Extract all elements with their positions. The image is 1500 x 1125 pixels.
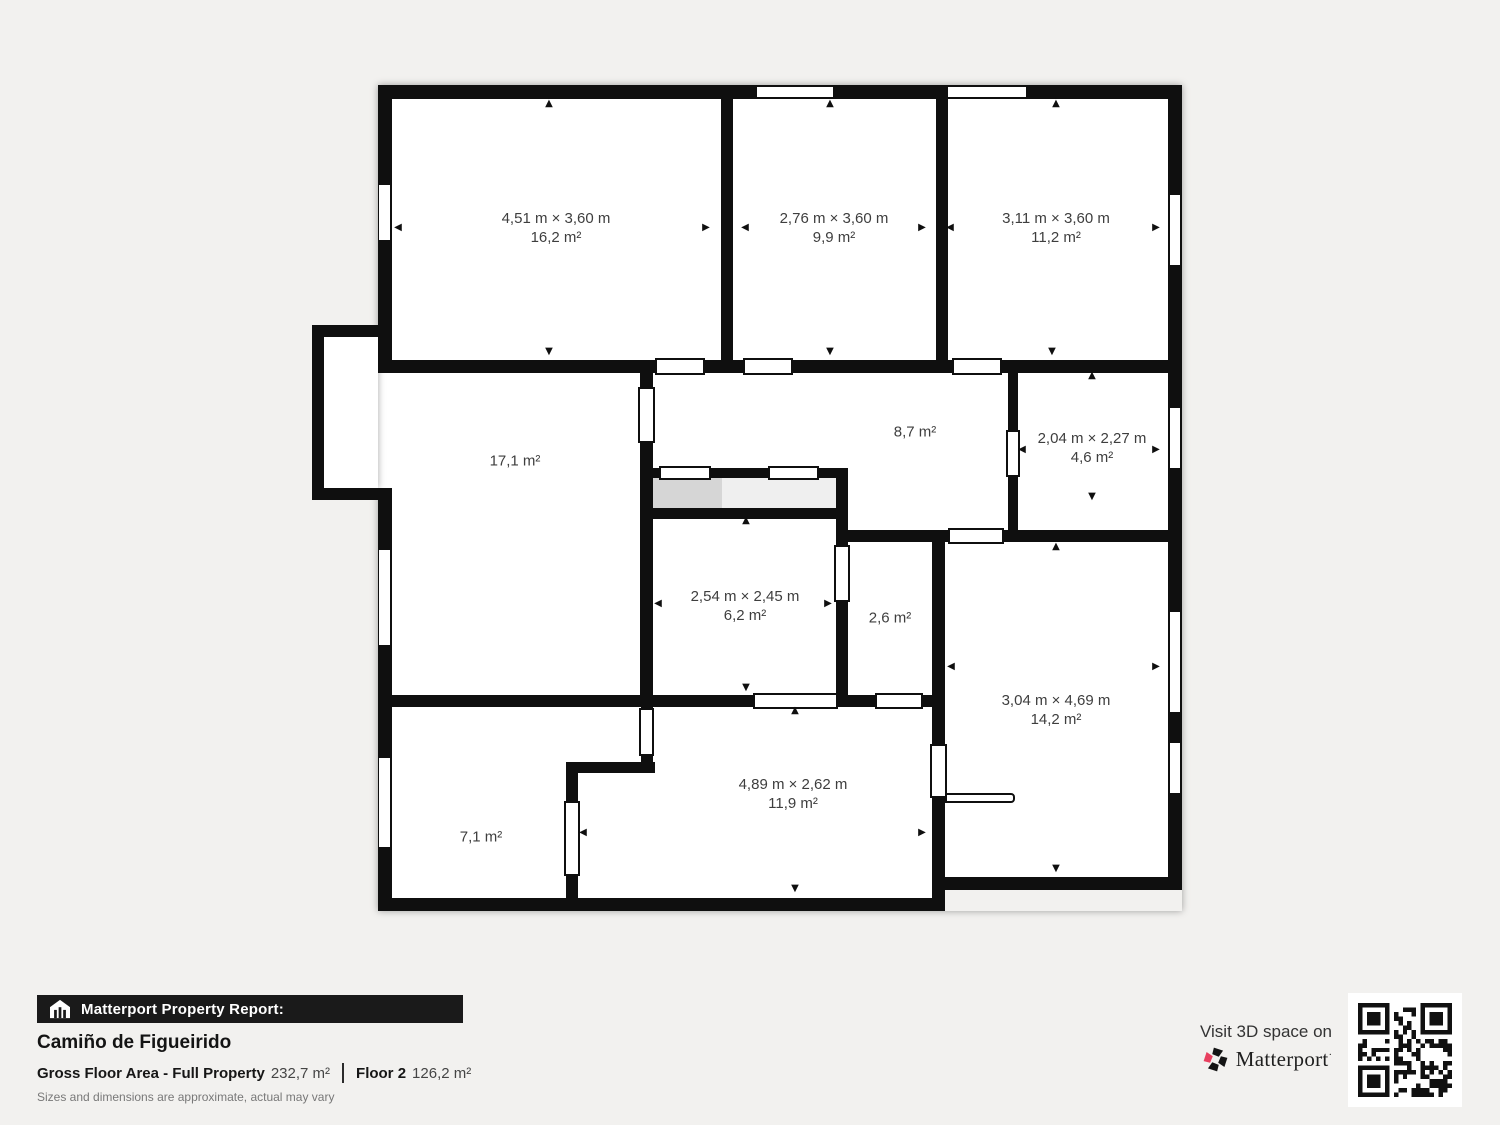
closet-area	[653, 478, 722, 508]
wall	[721, 99, 733, 373]
measure-arrow-up-icon: ▲	[1052, 99, 1060, 109]
area-summary: Gross Floor Area - Full Property 232,7 m…	[37, 1063, 471, 1083]
room-label: 7,1 m²	[460, 828, 503, 847]
room-label: 3,11 m × 3,60 m11,2 m²	[1002, 209, 1110, 247]
door-opening	[768, 466, 819, 480]
window	[757, 87, 833, 97]
room-dimensions: 3,11 m × 3,60 m	[1002, 209, 1110, 228]
measure-arrow-down-icon: ▼	[742, 683, 750, 693]
window	[379, 550, 390, 645]
room-area: 14,2 m²	[1002, 710, 1111, 729]
measure-arrow-down-icon: ▼	[1052, 864, 1060, 874]
room-label: 8,7 m²	[894, 423, 937, 442]
measure-arrow-right-icon: ▶	[702, 223, 710, 233]
measure-arrow-up-icon: ▲	[1052, 542, 1060, 552]
measure-arrow-down-icon: ▼	[791, 884, 799, 894]
background-patch	[945, 890, 1182, 911]
door-opening	[930, 744, 947, 798]
measure-arrow-right-icon: ▶	[824, 599, 832, 609]
window	[1170, 195, 1180, 265]
floor-area	[324, 337, 378, 488]
door-opening	[875, 693, 923, 709]
disclaimer: Sizes and dimensions are approximate, ac…	[37, 1090, 334, 1104]
measure-arrow-left-icon: ◀	[741, 223, 749, 233]
door-opening	[638, 387, 655, 443]
wall	[312, 325, 324, 500]
measure-arrow-left-icon: ◀	[1018, 445, 1026, 455]
room-label: 17,1 m²	[490, 452, 541, 471]
floor-label: Floor 2	[356, 1065, 406, 1082]
measure-arrow-up-icon: ▲	[1088, 371, 1096, 381]
trademark-dot: ·	[1329, 1050, 1333, 1061]
measure-arrow-down-icon: ▼	[545, 347, 553, 357]
room-label: 4,89 m × 2,62 m11,9 m²	[739, 775, 848, 813]
gfa-value: 232,7 m²	[271, 1065, 330, 1082]
room-area: 6,2 m²	[691, 606, 800, 625]
door-opening	[948, 528, 1004, 544]
room-label: 2,54 m × 2,45 m6,2 m²	[691, 587, 800, 625]
page: ▲▼◀▶▲▼◀▶▲▼◀▶▲▼◀▶▲▼◀▶▲▼◀▶▲▼◀▶4,51 m × 3,6…	[0, 0, 1500, 1125]
matterport-house-icon	[49, 999, 71, 1019]
room-area: 2,6 m²	[869, 609, 912, 628]
qr-code	[1348, 993, 1462, 1107]
matterport-wordmark: Matterport·	[1236, 1047, 1332, 1072]
door-leaf	[945, 793, 1015, 803]
door-opening	[564, 801, 580, 876]
measure-arrow-right-icon: ▶	[1152, 662, 1160, 672]
measure-arrow-left-icon: ◀	[654, 599, 662, 609]
window	[1170, 612, 1180, 712]
wall	[566, 762, 655, 773]
window	[379, 185, 390, 240]
room-label: 2,04 m × 2,27 m4,6 m²	[1038, 429, 1147, 467]
room-area: 16,2 m²	[502, 228, 611, 247]
measure-arrow-left-icon: ◀	[946, 223, 954, 233]
window	[1170, 743, 1180, 793]
wall	[932, 530, 945, 890]
measure-arrow-right-icon: ▶	[1152, 445, 1160, 455]
room-label: 4,51 m × 3,60 m16,2 m²	[502, 209, 611, 247]
room-area: 8,7 m²	[894, 423, 937, 442]
door-opening	[743, 358, 793, 375]
room-area: 7,1 m²	[460, 828, 503, 847]
room-dimensions: 3,04 m × 4,69 m	[1002, 691, 1111, 710]
room-area: 4,6 m²	[1038, 448, 1147, 467]
room-dimensions: 4,89 m × 2,62 m	[739, 775, 848, 794]
wall	[378, 898, 945, 911]
room-dimensions: 2,04 m × 2,27 m	[1038, 429, 1147, 448]
window	[948, 87, 1026, 97]
property-name: Camiño de Figueirido	[37, 1032, 231, 1054]
brand-bar-title: Matterport Property Report:	[81, 1001, 284, 1018]
wall	[312, 325, 392, 337]
wall	[932, 877, 1182, 890]
room-label: 2,76 m × 3,60 m9,9 m²	[780, 209, 889, 247]
wall	[936, 99, 948, 373]
wall	[836, 530, 1182, 542]
floor-value: 126,2 m²	[412, 1065, 471, 1082]
room-dimensions: 4,51 m × 3,60 m	[502, 209, 611, 228]
door-opening	[639, 708, 654, 756]
measure-arrow-left-icon: ◀	[947, 662, 955, 672]
closet-area	[722, 478, 838, 508]
measure-arrow-right-icon: ▶	[918, 223, 926, 233]
door-opening	[952, 358, 1002, 375]
window	[379, 758, 390, 847]
room-label: 3,04 m × 4,69 m14,2 m²	[1002, 691, 1111, 729]
measure-arrow-down-icon: ▼	[826, 347, 834, 357]
measure-arrow-up-icon: ▲	[791, 706, 799, 716]
wall	[392, 695, 945, 707]
gfa-label: Gross Floor Area - Full Property	[37, 1065, 265, 1082]
door-opening	[655, 358, 705, 375]
measure-arrow-left-icon: ◀	[579, 828, 587, 838]
matterport-logo: Matterport·	[1197, 1046, 1337, 1073]
door-opening	[659, 466, 711, 480]
measure-arrow-down-icon: ▼	[1048, 347, 1056, 357]
room-area: 11,2 m²	[1002, 228, 1110, 247]
measure-arrow-up-icon: ▲	[742, 516, 750, 526]
measure-arrow-up-icon: ▲	[826, 99, 834, 109]
report-brand-bar: Matterport Property Report:	[37, 995, 463, 1023]
measure-arrow-right-icon: ▶	[918, 828, 926, 838]
room-dimensions: 2,76 m × 3,60 m	[780, 209, 889, 228]
divider	[342, 1063, 344, 1083]
visit-3d-text: Visit 3D space on	[1196, 1022, 1336, 1042]
room-area: 11,9 m²	[739, 794, 848, 813]
door-opening	[834, 545, 850, 602]
measure-arrow-up-icon: ▲	[545, 99, 553, 109]
measure-arrow-right-icon: ▶	[1152, 223, 1160, 233]
room-area: 9,9 m²	[780, 228, 889, 247]
matterport-pinwheel-icon	[1202, 1046, 1229, 1073]
window	[1170, 408, 1180, 468]
room-area: 17,1 m²	[490, 452, 541, 471]
measure-arrow-down-icon: ▼	[1088, 492, 1096, 502]
room-label: 2,6 m²	[869, 609, 912, 628]
measure-arrow-left-icon: ◀	[394, 223, 402, 233]
room-dimensions: 2,54 m × 2,45 m	[691, 587, 800, 606]
